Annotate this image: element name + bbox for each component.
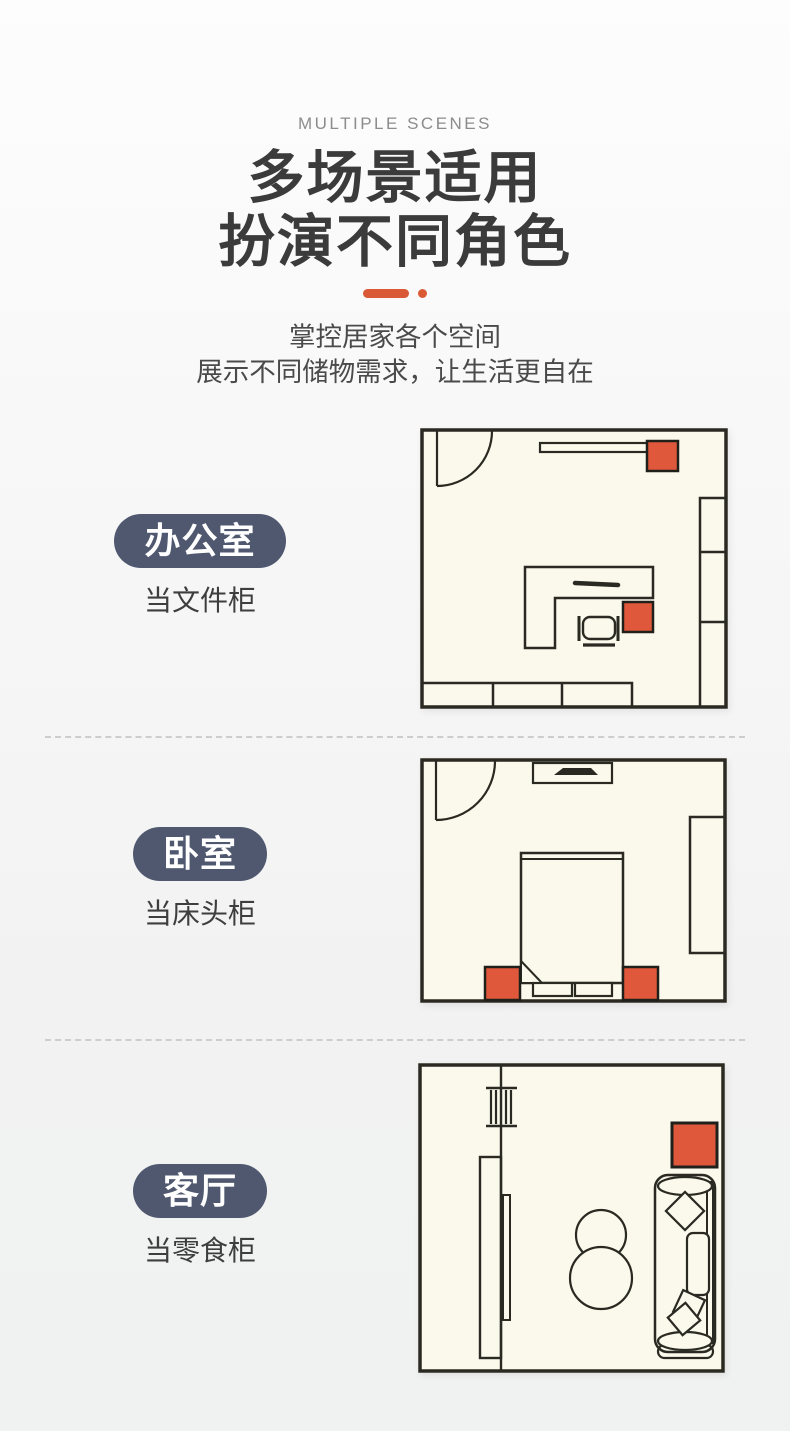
door-swing-icon [437,431,492,486]
desk-pen-icon [575,583,618,585]
section-eyebrow: MULTIPLE SCENES [0,114,790,134]
storage-cabinet-marker [672,1123,717,1167]
side-cabinet-icon [700,498,725,707]
title-divider [0,289,790,298]
section-title: 多场景适用 扮演不同角色 [0,146,790,274]
sofa-icon [655,1175,715,1358]
bed-icon [521,853,623,996]
tv-stand-icon [533,763,612,783]
scene-caption-living-room: 当零食柜 [90,1229,310,1269]
scene-tag-office: 办公室 [114,514,285,568]
storage-cabinet-marker [623,967,658,1000]
storage-cabinet-marker [647,441,678,471]
tv-cabinet-icon [480,1157,501,1358]
office-floor-plan [420,428,728,709]
living-room-floor-plan-svg [418,1063,725,1373]
scene-label-bedroom: 卧室 当床头柜 [90,827,310,932]
section-divider-dashed [45,736,745,738]
living-room-floor-plan [418,1063,725,1373]
office-chair-icon [579,616,618,645]
scene-label-office: 办公室 当文件柜 [90,514,310,619]
scene-tag-bedroom: 卧室 [133,827,267,881]
bottom-cabinet-icon [422,683,632,707]
coffee-table-icon [570,1210,632,1309]
sofa-pillow-icon [666,1192,704,1230]
title-line-1: 多场景适用 [0,146,790,210]
scene-tag-living-room: 客厅 [133,1164,267,1218]
pillow-icon [575,983,612,996]
pillow-icon [533,983,572,996]
bedroom-floor-plan-svg [420,758,727,1003]
tv-screen-icon [503,1195,510,1320]
divider-bar-icon [363,289,409,298]
room-wall [422,430,726,707]
title-line-2: 扮演不同角色 [0,210,790,274]
scene-caption-office: 当文件柜 [90,579,310,619]
storage-cabinet-marker [623,602,653,632]
bedroom-floor-plan [420,758,727,1003]
office-floor-plan-svg [420,428,728,709]
divider-dot-icon [418,289,427,298]
door-swing-icon [436,761,495,820]
scene-label-living-room: 客厅 当零食柜 [90,1164,310,1269]
scene-caption-bedroom: 当床头柜 [90,892,310,932]
section-divider-dashed [45,1039,745,1041]
subtitle-line-2: 展示不同储物需求，让生活更自在 [0,355,790,390]
section-subtitle: 掌控居家各个空间 展示不同储物需求，让生活更自在 [0,320,790,390]
room-wall [422,760,725,1001]
subtitle-line-1: 掌控居家各个空间 [0,320,790,355]
wall-shelf-icon [540,443,653,452]
wardrobe-icon [690,817,725,953]
storage-cabinet-marker [485,967,520,1000]
